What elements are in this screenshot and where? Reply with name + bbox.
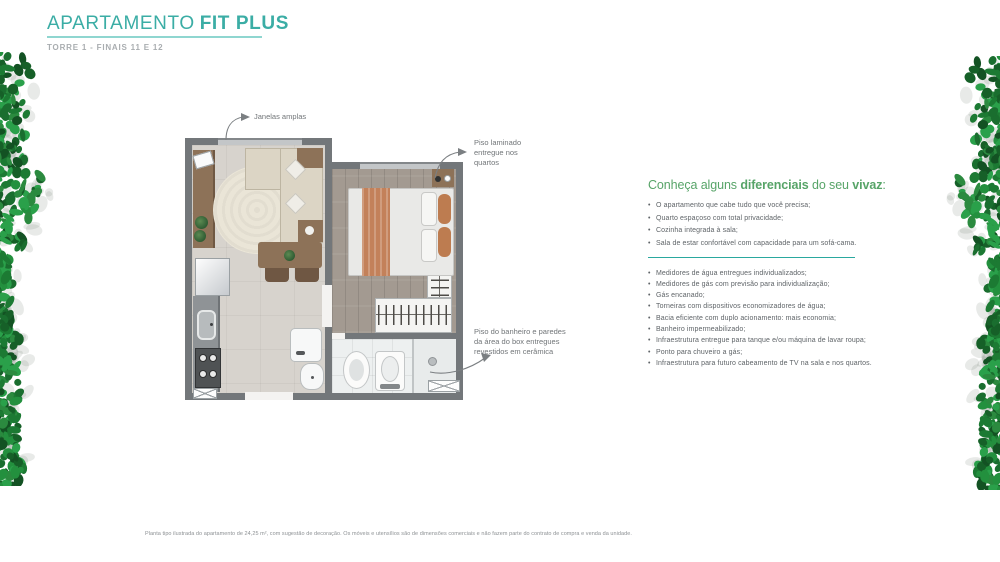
toilet: [375, 351, 405, 391]
feature-item: Banheiro impermeabilizado;: [648, 326, 908, 333]
title-underline: [47, 36, 262, 38]
entry-door: [245, 392, 293, 400]
accent-cushion: [438, 194, 451, 224]
feature-item: Infraestrutura para futuro cabeamento de…: [648, 360, 908, 367]
ceramic-callout-arrow: [428, 348, 496, 376]
stove: [195, 348, 221, 388]
window-callout-arrow: [222, 112, 252, 142]
washing-machine: [290, 328, 322, 362]
plant: [194, 230, 206, 242]
foliage-right-decoration: [940, 56, 1000, 490]
dining-table: [258, 242, 322, 268]
bedroom-window: [360, 162, 440, 169]
window-callout-label: Janelas amplas: [254, 112, 306, 122]
bed-pillow: [421, 192, 437, 226]
feature-item: Bacia eficiente com duplo acionamento: m…: [648, 315, 908, 322]
foliage-left-decoration: [0, 52, 60, 486]
disclaimer-text: Planta tipo ilustrada do apartamento de …: [145, 531, 625, 537]
bedroom-door: [322, 285, 332, 327]
side-table: [298, 220, 323, 242]
laminate-callout-label: Piso laminado entregue nos quartos: [474, 138, 521, 168]
feature-item: Quarto espaçoso com total privacidade;: [648, 215, 908, 222]
bed-pillow: [421, 229, 437, 262]
features-panel: Conheça alguns diferenciais do seu vivaz…: [648, 178, 908, 371]
page-title-bold: FIT PLUS: [200, 13, 289, 34]
feature-item: Sala de estar confortável com capacidade…: [648, 240, 908, 247]
bed-runner: [362, 188, 390, 276]
feature-item: Cozinha integrada à sala;: [648, 227, 908, 234]
feature-item: Medidores de água entregues individualiz…: [648, 270, 908, 277]
feature-item: O apartamento que cabe tudo que você pre…: [648, 202, 908, 209]
page-title-regular: APARTAMENTO: [47, 13, 195, 34]
wardrobe: [375, 298, 452, 333]
laminate-callout-arrow: [432, 145, 468, 181]
features-list-apartment: O apartamento que cabe tudo que você pre…: [648, 202, 908, 247]
features-heading: Conheça alguns diferenciais do seu vivaz…: [648, 178, 908, 192]
feature-item: Ponto para chuveiro a gás;: [648, 349, 908, 356]
feature-item: Gás encanado;: [648, 292, 908, 299]
page-title: APARTAMENTOFIT PLUS: [47, 13, 289, 35]
feature-item: Torneiras com dispositivos economizadore…: [648, 303, 908, 310]
bathroom-shaft: [428, 380, 460, 392]
feature-item: Medidores de gás com previsão para indiv…: [648, 281, 908, 288]
brochure-page: APARTAMENTOFIT PLUS TORRE 1 - FINAIS 11 …: [0, 0, 1000, 562]
bathroom-sink: [343, 351, 370, 389]
service-shaft: [193, 388, 217, 399]
page-subtitle: TORRE 1 - FINAIS 11 E 12: [47, 43, 163, 52]
teal-divider: [648, 257, 855, 258]
shower-partition: [412, 339, 414, 393]
laundry-tank: [300, 363, 324, 390]
accent-cushion: [438, 227, 451, 257]
floor-plan: [185, 130, 465, 402]
plant: [195, 216, 208, 229]
features-list-infrastructure: Medidores de água entregues individualiz…: [648, 270, 908, 367]
feature-item: Infraestrutura entregue para tanque e/ou…: [648, 337, 908, 344]
kitchen-sink: [197, 310, 216, 340]
refrigerator: [195, 258, 230, 296]
